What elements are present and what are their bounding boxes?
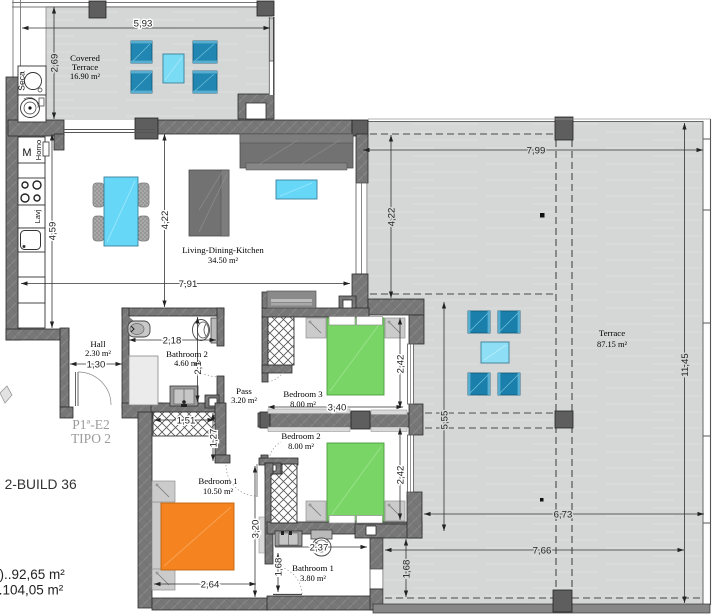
svg-text:Bedroom 1: Bedroom 1 [198, 476, 237, 486]
svg-text:e)..92,65 m²: e)..92,65 m² [0, 567, 65, 582]
svg-text:Terrace: Terrace [72, 62, 98, 72]
svg-text:2,69: 2,69 [50, 54, 61, 73]
svg-text:M: M [22, 147, 31, 159]
svg-text:1,30: 1,30 [87, 360, 106, 371]
svg-text:87.15 m²: 87.15 m² [597, 340, 627, 349]
svg-text:O 2-BUILD 36: O 2-BUILD 36 [0, 477, 77, 492]
svg-text:4,22: 4,22 [160, 211, 171, 230]
svg-text:4,59: 4,59 [48, 222, 59, 241]
svg-text:5,55: 5,55 [440, 411, 451, 430]
svg-text:3,20: 3,20 [251, 520, 262, 539]
svg-text:34.50 m²: 34.50 m² [208, 256, 238, 265]
svg-text:6,73: 6,73 [554, 510, 573, 521]
svg-text:11,45: 11,45 [680, 353, 691, 376]
svg-text:2,64: 2,64 [201, 580, 220, 591]
svg-text:P1ª-E2: P1ª-E2 [72, 417, 109, 432]
svg-text:4.60 m²: 4.60 m² [174, 359, 200, 368]
svg-text:Bathroom 2: Bathroom 2 [166, 349, 208, 359]
svg-text:TIPO 2: TIPO 2 [71, 431, 111, 446]
svg-text:3.80 m²: 3.80 m² [300, 574, 326, 583]
svg-text:8.00 m²: 8.00 m² [288, 442, 314, 451]
svg-text:..104,05 m²: ..104,05 m² [0, 583, 64, 598]
svg-text:4,22: 4,22 [387, 208, 398, 227]
svg-text:Bedroom 2: Bedroom 2 [281, 431, 320, 441]
svg-text:1,68: 1,68 [402, 560, 413, 579]
svg-text:1,68: 1,68 [274, 558, 285, 577]
svg-text:Terrace: Terrace [599, 328, 625, 338]
svg-text:8.00 m²: 8.00 m² [290, 400, 316, 409]
svg-text:Seca: Seca [17, 71, 27, 91]
svg-text:2,37: 2,37 [310, 543, 329, 554]
svg-text:1,27: 1,27 [209, 429, 220, 448]
svg-text:2,18: 2,18 [163, 336, 182, 347]
svg-text:Horno: Horno [34, 140, 43, 160]
svg-text:Bedroom 3: Bedroom 3 [283, 389, 323, 399]
svg-text:10.50 m²: 10.50 m² [203, 487, 233, 496]
svg-text:Lavj: Lavj [33, 209, 42, 223]
svg-text:3.20 m²: 3.20 m² [231, 396, 257, 405]
svg-text:7,99: 7,99 [527, 146, 546, 157]
svg-text:2,42: 2,42 [396, 355, 407, 374]
svg-text:2.30 m²: 2.30 m² [85, 349, 111, 358]
svg-text:Bathroom 1: Bathroom 1 [292, 563, 334, 573]
svg-text:1,51: 1,51 [177, 416, 196, 427]
svg-text:7,91: 7,91 [179, 279, 198, 290]
svg-text:Living-Dining-Kitchen: Living-Dining-Kitchen [182, 245, 264, 255]
svg-text:Pass: Pass [236, 386, 252, 396]
svg-text:2,42: 2,42 [396, 466, 407, 485]
svg-text:5,93: 5,93 [134, 19, 153, 30]
svg-text:3,40: 3,40 [328, 403, 347, 414]
svg-text:16.90 m²: 16.90 m² [70, 72, 100, 81]
svg-text:Hall: Hall [90, 339, 106, 349]
svg-text:7,66: 7,66 [533, 546, 552, 557]
